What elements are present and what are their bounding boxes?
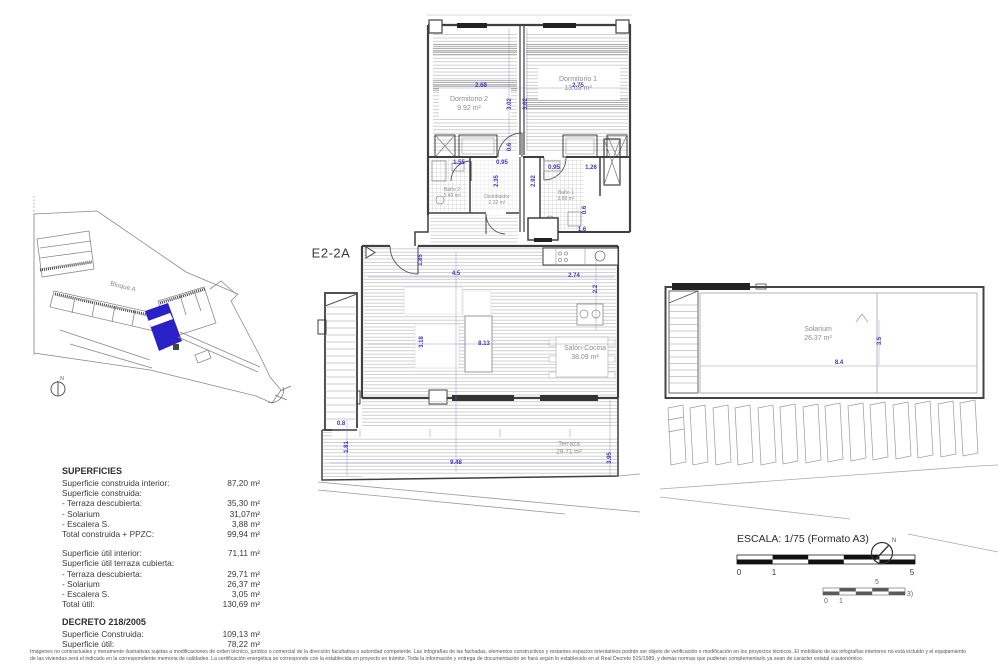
floor-plan-sheet: E2-2A Bloque A N 2.68 2.75 3.02 3.02 0.6… (0, 0, 1000, 666)
room-area: 38.09 m² (564, 353, 606, 362)
room-label-bano-1: Baño 1 3.89 m² (558, 190, 575, 203)
dim-label: 1.55 (453, 160, 465, 166)
room-area: 13.03 m² (559, 84, 597, 93)
superficies-row: - Solarium26,37 m² (62, 579, 260, 589)
sup-value: 31,07m² (230, 509, 260, 519)
site-plan (34, 196, 291, 403)
dim-label: 2.92 (531, 175, 537, 187)
superficies-row: Superficie útil interior:71,11 m² (62, 548, 260, 558)
dim-label: 3.02 (507, 98, 513, 110)
superficies-panel: SUPERFICIES Superficie construida interi… (62, 466, 260, 650)
superficies-row: - Escalera S.3,05 m² (62, 589, 260, 599)
dim-label: 1.85 (418, 254, 424, 266)
sup-label: - Solarium (62, 509, 100, 519)
superficies-row: - Escalera S.3,88 m² (62, 519, 260, 529)
room-label-terraza: Terraza 29.71 m² (556, 441, 582, 458)
dim-label: 8.13 (478, 341, 490, 347)
superficies-row: Total útil:130,69 m² (62, 599, 260, 609)
room-area: 3.40 m² (444, 193, 461, 199)
superficies-row: Superficie construida interior:87,20 m² (62, 478, 260, 488)
decreto-title: DECRETO 218/2005 (62, 617, 260, 627)
room-area: 2.32 m² (484, 200, 509, 206)
sup-label: Superficie construida interior: (62, 478, 169, 488)
room-area: 29.71 m² (556, 449, 582, 457)
compass-north-label: N (892, 538, 896, 544)
sup-label: Superficie útil interior: (62, 548, 142, 558)
dim-label: 4.5 (452, 271, 460, 277)
sup-label: Total útil: (62, 599, 95, 609)
dim-label: 1.26 (585, 165, 597, 171)
scale-tick-ghost: 1 (839, 598, 843, 605)
sup-value: 109,13 m² (223, 629, 260, 639)
sup-value: 3,05 m² (232, 589, 260, 599)
scale-label: ESCALA: 1/75 (Formato A3) (737, 533, 869, 545)
dim-label: 8.4 (835, 360, 843, 366)
dim-label: 3.02 (523, 98, 529, 110)
scale-tick-ghost: 5 (875, 579, 879, 586)
room-label-dormitorio-2: Dormitorio 2 9.92 m² (450, 95, 488, 113)
superficies-row: Total construida + PPZC:99,94 m² (62, 529, 260, 539)
scale-tick: 0 (737, 568, 741, 577)
dim-label: 2.2 (593, 285, 599, 293)
site-north-icon (51, 381, 65, 396)
room-label-bano-2: Baño 2 3.40 m² (444, 187, 461, 200)
sup-label: Superficie Construida: (62, 629, 144, 639)
site-north-label: N (60, 376, 64, 382)
scale-bar (737, 555, 915, 564)
room-name: Terraza (556, 441, 582, 449)
sup-value: 130,69 m² (223, 599, 260, 609)
sup-label: - Solarium (62, 579, 100, 589)
superficies-row: Superficie útil terraza cubierta: (62, 558, 260, 568)
sup-value: 87,20 m² (227, 478, 260, 488)
room-name: Dormitorio 1 (559, 75, 597, 84)
superficies-title: SUPERFICIES (62, 466, 260, 476)
sup-label: Total construida + PPZC: (62, 529, 154, 539)
decreto-row: Superficie Construida:109,13 m² (62, 629, 260, 639)
room-label-salon-cocina: Salón-Cocina 38.09 m² (564, 344, 606, 362)
superficies-row: - Solarium31,07m² (62, 509, 260, 519)
sup-value: 26,37 m² (227, 579, 260, 589)
dim-label: 0.95 (496, 160, 508, 166)
dim-label: 0.95 (548, 165, 560, 171)
sup-value: 29,71 m² (227, 569, 260, 579)
dim-label: 9.48 (450, 460, 462, 466)
dim-label: 2.68 (475, 83, 487, 89)
scale-tick: 5 (910, 568, 914, 577)
sup-label: - Terraza descubierta: (62, 498, 142, 508)
sup-value: 35,30 m² (227, 498, 260, 508)
sup-value: 99,94 m² (227, 529, 260, 539)
sup-label: Superficie útil terraza cubierta: (62, 558, 174, 568)
room-label-dormitorio-1: Dormitorio 1 13.03 m² (559, 75, 597, 93)
sup-label: - Escalera S. (62, 519, 110, 529)
disclaimer-line-2: de las viviendas será el indicado en la … (30, 656, 995, 662)
superficies-row: Superficie construida: (62, 488, 260, 498)
sup-label: Superficie construida: (62, 488, 142, 498)
scale-tick-ghost: 0 (824, 598, 828, 605)
room-label-solarium: Solarium 26.37 m² (804, 325, 832, 343)
dim-label: 3.18 (419, 336, 425, 348)
dim-label: 2.35 (494, 175, 500, 187)
dim-label: 0.8 (337, 421, 345, 427)
disclaimer-line-1: Imágenes no contractuales y meramente il… (30, 649, 995, 655)
sup-value: 71,11 m² (228, 548, 260, 558)
unit-code-label: E2-2A (312, 246, 351, 261)
scale-bar-ghost (823, 588, 905, 595)
sup-label: - Escalera S. (62, 589, 110, 599)
sup-value: 3,88 m² (232, 519, 260, 529)
sup-label: - Terraza descubierta: (62, 569, 142, 579)
dim-label: 1.6 (578, 227, 586, 233)
dim-label: 0.6 (507, 143, 513, 151)
dim-label: 3.95 (607, 452, 613, 464)
dim-label: 3.5 (877, 337, 883, 345)
room-name: Dormitorio 2 (450, 95, 488, 104)
dim-label: 2.74 (568, 273, 580, 279)
room-name: Salón-Cocina (564, 344, 606, 353)
room-label-distribuidor: Distribuidor 2.32 m² (484, 194, 509, 207)
solarium-plan (660, 283, 998, 552)
dim-label: 0.6 (582, 206, 588, 214)
dim-label: 1.81 (344, 441, 350, 453)
room-area: 3.89 m² (558, 196, 575, 202)
room-area: 26.37 m² (804, 334, 832, 343)
room-name: Solarium (804, 325, 832, 334)
scale-tick-ghost: 3) (907, 591, 913, 598)
room-area: 9.92 m² (450, 104, 488, 113)
superficies-row: - Terraza descubierta:29,71 m² (62, 569, 260, 579)
superficies-row: - Terraza descubierta:35,30 m² (62, 498, 260, 508)
scale-tick: 1 (772, 568, 776, 577)
